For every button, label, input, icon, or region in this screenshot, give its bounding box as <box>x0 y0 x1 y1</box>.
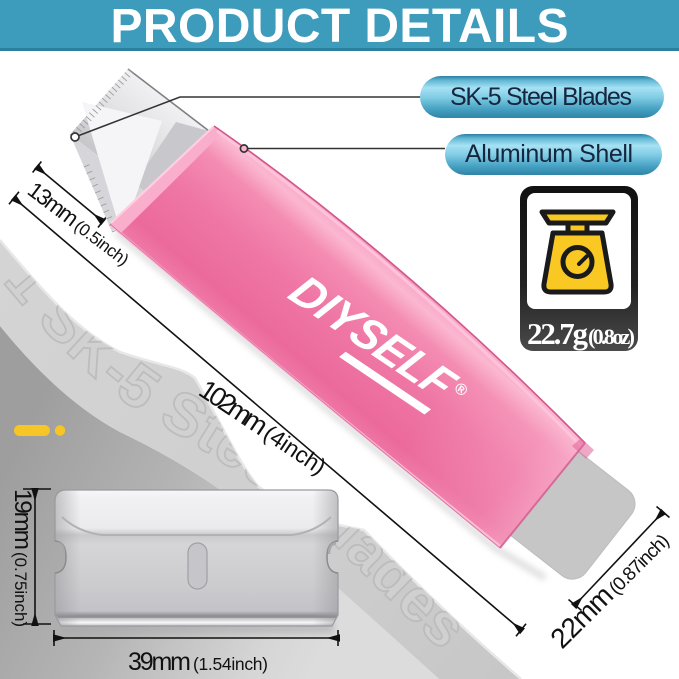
svg-text:(0.75inch): (0.75inch) <box>11 552 30 627</box>
svg-text:SK-5 Steel Blades: SK-5 Steel Blades <box>450 83 632 111</box>
svg-text:39mm: 39mm <box>128 648 191 676</box>
svg-text:(0.8oz): (0.8oz) <box>588 324 635 349</box>
svg-text:(1.54inch): (1.54inch) <box>193 654 268 674</box>
svg-text:Aluminum Shell: Aluminum Shell <box>465 140 633 168</box>
svg-text:19mm: 19mm <box>9 489 36 550</box>
svg-text:PRODUCT DETAILS: PRODUCT DETAILS <box>111 0 569 53</box>
svg-text:22.7g: 22.7g <box>527 316 589 351</box>
